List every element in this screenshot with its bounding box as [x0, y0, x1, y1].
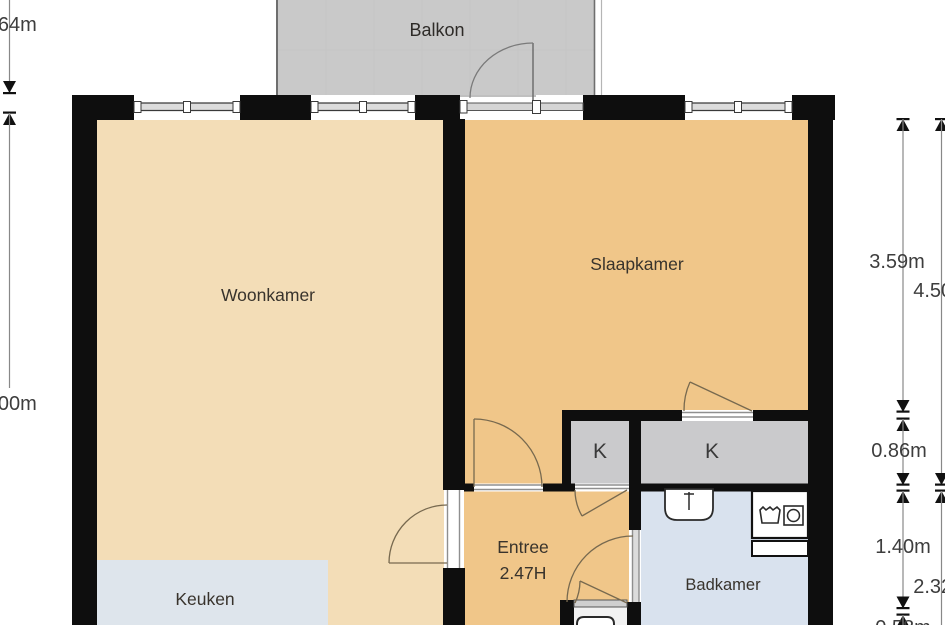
svg-text:Entree: Entree — [497, 537, 549, 557]
svg-text:Slaapkamer: Slaapkamer — [590, 254, 684, 274]
svg-text:Badkamer: Badkamer — [685, 576, 761, 594]
svg-text:2.47H: 2.47H — [500, 563, 547, 583]
svg-text:Balkon: Balkon — [409, 20, 464, 40]
svg-text:K: K — [705, 440, 719, 463]
svg-text:Keuken: Keuken — [175, 589, 234, 609]
svg-text:2.64m: 2.64m — [0, 14, 37, 36]
svg-text:3.59m: 3.59m — [869, 251, 925, 273]
svg-text:0.86m: 0.86m — [871, 440, 927, 462]
svg-text:Woonkamer: Woonkamer — [221, 285, 315, 305]
svg-text:5.00m: 5.00m — [0, 393, 37, 415]
svg-text:0.58m: 0.58m — [875, 617, 931, 625]
svg-text:2.32m: 2.32m — [913, 576, 945, 598]
svg-text:4.50m: 4.50m — [913, 280, 945, 302]
svg-text:1.40m: 1.40m — [875, 536, 931, 558]
svg-text:K: K — [593, 440, 607, 463]
